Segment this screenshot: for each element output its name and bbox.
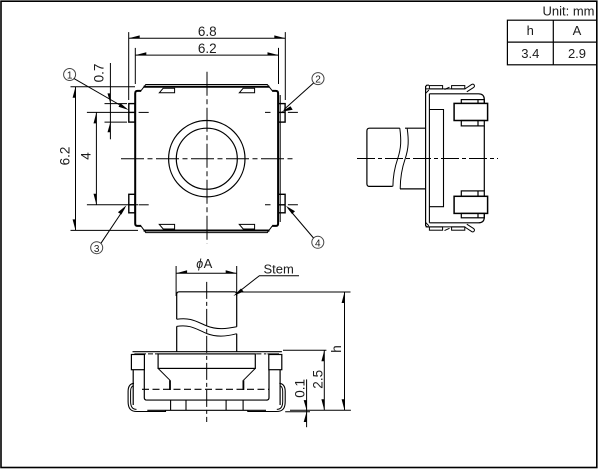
svg-text:3.4: 3.4	[521, 46, 539, 61]
svg-text:Stem: Stem	[264, 261, 294, 276]
svg-text:2: 2	[315, 75, 321, 86]
svg-text:ϕ: ϕ	[196, 257, 203, 271]
svg-text:Unit: mm: Unit: mm	[543, 3, 595, 18]
svg-text:3: 3	[94, 244, 100, 255]
svg-text:6.2: 6.2	[198, 41, 217, 56]
svg-text:h: h	[329, 345, 344, 353]
svg-text:0.1: 0.1	[293, 379, 308, 398]
svg-text:A: A	[204, 256, 213, 271]
svg-text:6.8: 6.8	[198, 24, 217, 39]
svg-text:h: h	[527, 23, 534, 38]
svg-text:6.2: 6.2	[58, 147, 73, 166]
svg-text:4: 4	[315, 238, 321, 249]
svg-text:4: 4	[79, 152, 94, 160]
svg-text:A: A	[573, 23, 582, 38]
svg-text:1: 1	[67, 71, 73, 82]
svg-text:0.7: 0.7	[92, 64, 107, 83]
svg-text:2.5: 2.5	[311, 370, 326, 389]
svg-text:2.9: 2.9	[568, 46, 586, 61]
